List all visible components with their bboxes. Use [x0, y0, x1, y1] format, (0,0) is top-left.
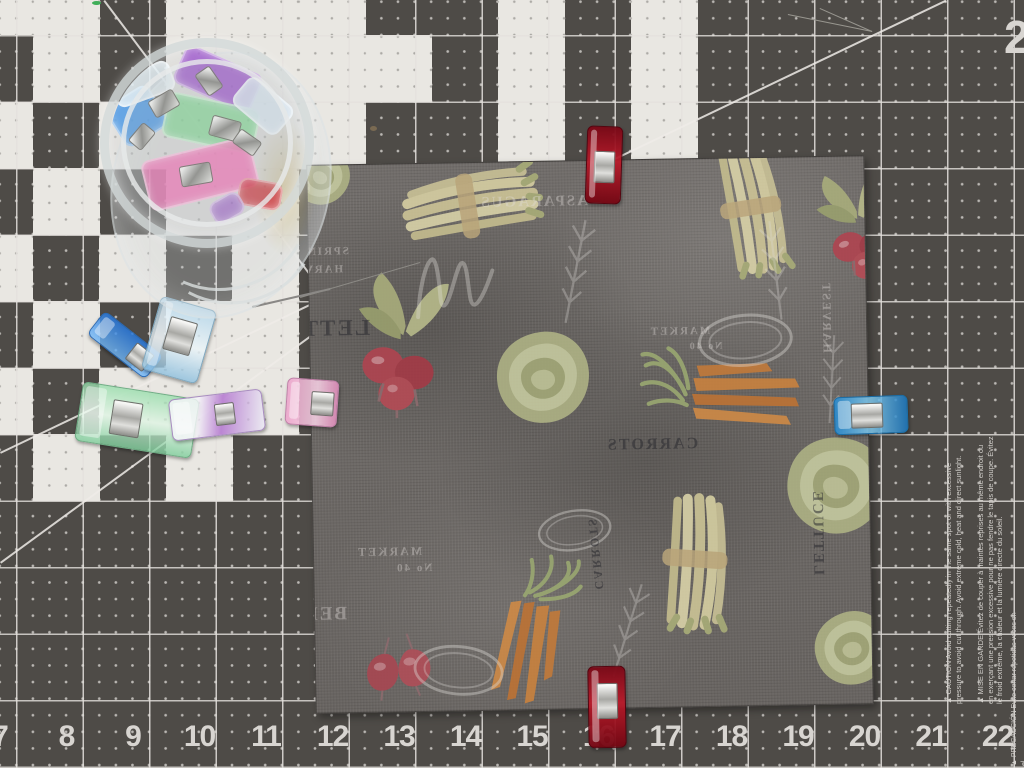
clip-metal-spring	[310, 391, 335, 417]
red-clip-top	[585, 125, 624, 204]
clip-metal-spring	[593, 151, 615, 184]
clip-gloss	[172, 401, 193, 435]
clip-gloss	[837, 401, 851, 429]
photo-quilting-scene: 78910111213141516171819202122 2 ▲ CAUTIO…	[0, 0, 1024, 768]
clip-metal-spring	[851, 403, 884, 429]
clip-metal-spring	[109, 399, 144, 438]
blue-clip-right-edge	[833, 395, 908, 436]
clip-gloss	[591, 670, 599, 742]
clip-gloss	[289, 382, 301, 420]
clip-gloss	[79, 386, 108, 439]
red-clip-bottom	[587, 666, 626, 749]
clip-metal-spring	[597, 683, 619, 719]
pink-clip-left-edge	[284, 377, 339, 428]
jar-of-sewing-clips	[80, 20, 360, 340]
jar-rim-inner	[121, 59, 293, 227]
clip-metal-spring	[214, 402, 237, 426]
